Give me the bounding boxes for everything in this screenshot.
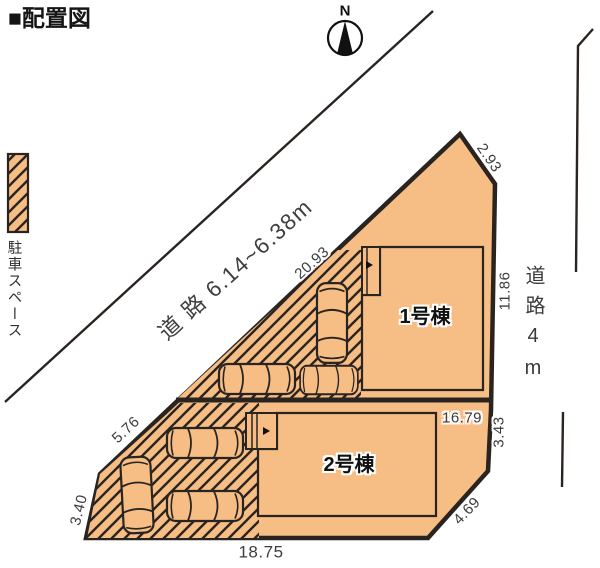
building-2-label: 2号棟 bbox=[323, 455, 374, 475]
parking-legend-label: 駐車スペース bbox=[6, 240, 21, 339]
car-icon bbox=[167, 428, 243, 458]
dim-south: 18.75 bbox=[238, 544, 283, 561]
car-icon bbox=[167, 491, 243, 521]
road-east-label: 道路4m bbox=[523, 265, 543, 389]
compass-north-label: N bbox=[340, 4, 351, 19]
site-plan: ■配置図 N 駐車スペース 道 路 6.14~6.38m 道路4m 1号棟 2号… bbox=[0, 0, 600, 568]
car-icon bbox=[317, 283, 347, 363]
car-icon bbox=[219, 364, 295, 394]
car-icon bbox=[300, 366, 358, 395]
page-title: ■配置図 bbox=[8, 7, 91, 30]
compass-icon bbox=[328, 21, 362, 55]
building-1-label: 1号棟 bbox=[399, 307, 450, 327]
parking-legend-swatch bbox=[8, 154, 28, 232]
dim-east-lower: 3.43 bbox=[492, 416, 507, 447]
road-east-edge bbox=[562, 29, 593, 487]
dim-lot-divider: 16.79 bbox=[442, 411, 482, 426]
car-icon bbox=[120, 456, 154, 533]
dim-east-upper: 11.86 bbox=[498, 272, 513, 311]
